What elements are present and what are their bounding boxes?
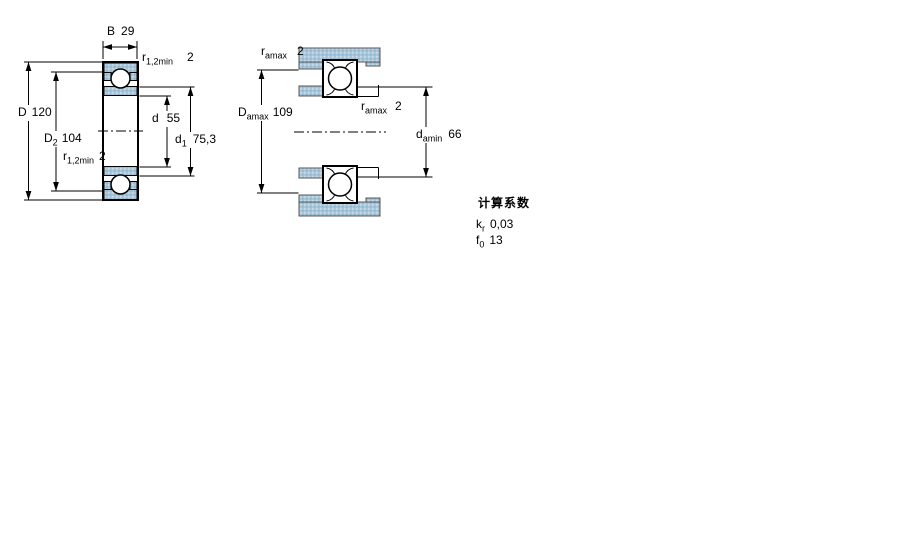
factor-row-kr: kr0,03 xyxy=(476,217,513,233)
right-abutment-view xyxy=(257,48,433,216)
dim-label-damin: damin66 xyxy=(414,127,464,143)
ball-top-right-view xyxy=(329,67,352,90)
dim-label-ramax-top: ramax2 xyxy=(261,44,304,60)
dim-label-Damax: Damax109 xyxy=(236,105,295,121)
ball-bottom-right-view xyxy=(329,173,352,196)
dim-label-r12min-bottom: r1,2min2 xyxy=(63,149,106,165)
factor-row-f0: f013 xyxy=(476,233,503,249)
dim-label-ramax-mid: ramax2 xyxy=(361,99,402,115)
dim-label-d: d55 xyxy=(150,111,182,127)
bearing-drawing-page: B29 r1,2min2 D120 D2104 d55 d175,3 r1,2m… xyxy=(0,0,900,560)
dim-label-d1: d175,3 xyxy=(173,132,218,148)
calculation-factors-heading: 计算系数 xyxy=(478,196,530,210)
dim-label-width-B: B29 xyxy=(107,24,134,40)
dim-label-D2: D2104 xyxy=(42,131,84,147)
ball-bottom xyxy=(111,175,130,194)
dim-label-D: D120 xyxy=(16,105,54,121)
dim-label-r12min-top: r1,2min2 xyxy=(142,50,194,66)
ball-top xyxy=(111,69,130,88)
bearing-technical-drawing xyxy=(0,0,900,560)
